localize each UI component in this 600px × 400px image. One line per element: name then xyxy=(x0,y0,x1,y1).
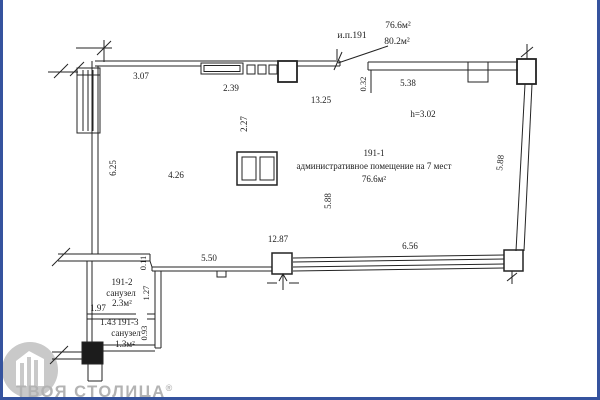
room-wc1-name: санузел xyxy=(106,288,136,298)
shaft-symbol xyxy=(237,152,277,185)
room-main-area: 76.6м² xyxy=(362,174,386,184)
column-bottom-right xyxy=(504,250,523,271)
entrance-unit-label: и.п.191 xyxy=(337,31,366,41)
room-main-name: административное помещение на 7 мест xyxy=(297,161,452,171)
bottom-wall-left xyxy=(152,267,272,277)
dim-12-87: 12.87 xyxy=(268,234,289,244)
room-wc1-area: 2.3м² xyxy=(112,298,132,308)
room-wc2-area: 1.3м² xyxy=(115,339,135,349)
dim-tick-top-right xyxy=(521,44,533,59)
dim-0-11: 0.11 xyxy=(138,256,148,271)
dim-2-27: 2.27 xyxy=(239,116,249,132)
watermark-brand-text: ТВОЯ СТОЛИЦА® xyxy=(16,383,173,400)
dim-1-27: 1.27 xyxy=(141,286,151,301)
top-wall-right xyxy=(368,62,518,93)
column-top-middle xyxy=(278,61,297,82)
room-wc2-name: санузел xyxy=(111,328,141,338)
floor-plan-page: ТВОЯ СТОЛИЦА® xyxy=(0,0,600,400)
room-label-main: 191-1 административное помещение на 7 ме… xyxy=(297,148,452,184)
room-wc1-number: 191-2 xyxy=(112,277,133,287)
column-bottom-left xyxy=(82,342,103,364)
ceiling-height-label: h=3.02 xyxy=(410,109,435,119)
total-area-label: 76.6м² xyxy=(385,21,411,31)
dim-1-97: 1.97 xyxy=(90,303,106,313)
dim-1-43: 1.43 xyxy=(100,317,116,327)
dim-4-26: 4.26 xyxy=(168,170,184,180)
dim-2-39: 2.39 xyxy=(223,83,239,93)
column-top-right xyxy=(517,59,536,84)
bottom-door-symbol xyxy=(267,274,299,290)
dim-3-07: 3.07 xyxy=(133,71,149,81)
dim-tick-bottom-right xyxy=(507,271,517,284)
dim-0-32: 0.32 xyxy=(358,77,368,92)
floor-plan-drawing: ТВОЯ СТОЛИЦА® xyxy=(0,0,600,400)
right-wall xyxy=(516,84,532,251)
dim-5-50: 5.50 xyxy=(201,253,217,263)
registered-mark: ® xyxy=(166,383,173,393)
dim-13-25: 13.25 xyxy=(311,95,332,105)
room-wc2-number: 191-3 xyxy=(118,317,139,327)
dim-5-88-inner: 5.88 xyxy=(323,193,333,209)
dim-6-56: 6.56 xyxy=(402,241,418,251)
dim-tick-top-left xyxy=(48,40,112,78)
dim-5-38: 5.38 xyxy=(400,78,416,88)
room-label-wc1: 191-2 санузел 2.3м² xyxy=(106,277,136,308)
left-stub-wall xyxy=(52,248,152,267)
dim-5-88-right: 5.88 xyxy=(494,154,506,171)
left-window xyxy=(70,62,100,133)
top-window xyxy=(201,63,277,74)
dim-6-25: 6.25 xyxy=(108,160,118,176)
bottom-wall-right xyxy=(293,255,504,271)
total-area2-label: 80.2м² xyxy=(384,37,410,47)
top-wall-left xyxy=(95,49,342,70)
column-bottom-middle xyxy=(272,253,292,274)
room-main-number: 191-1 xyxy=(364,148,385,158)
entrance-leader-line xyxy=(338,46,388,63)
